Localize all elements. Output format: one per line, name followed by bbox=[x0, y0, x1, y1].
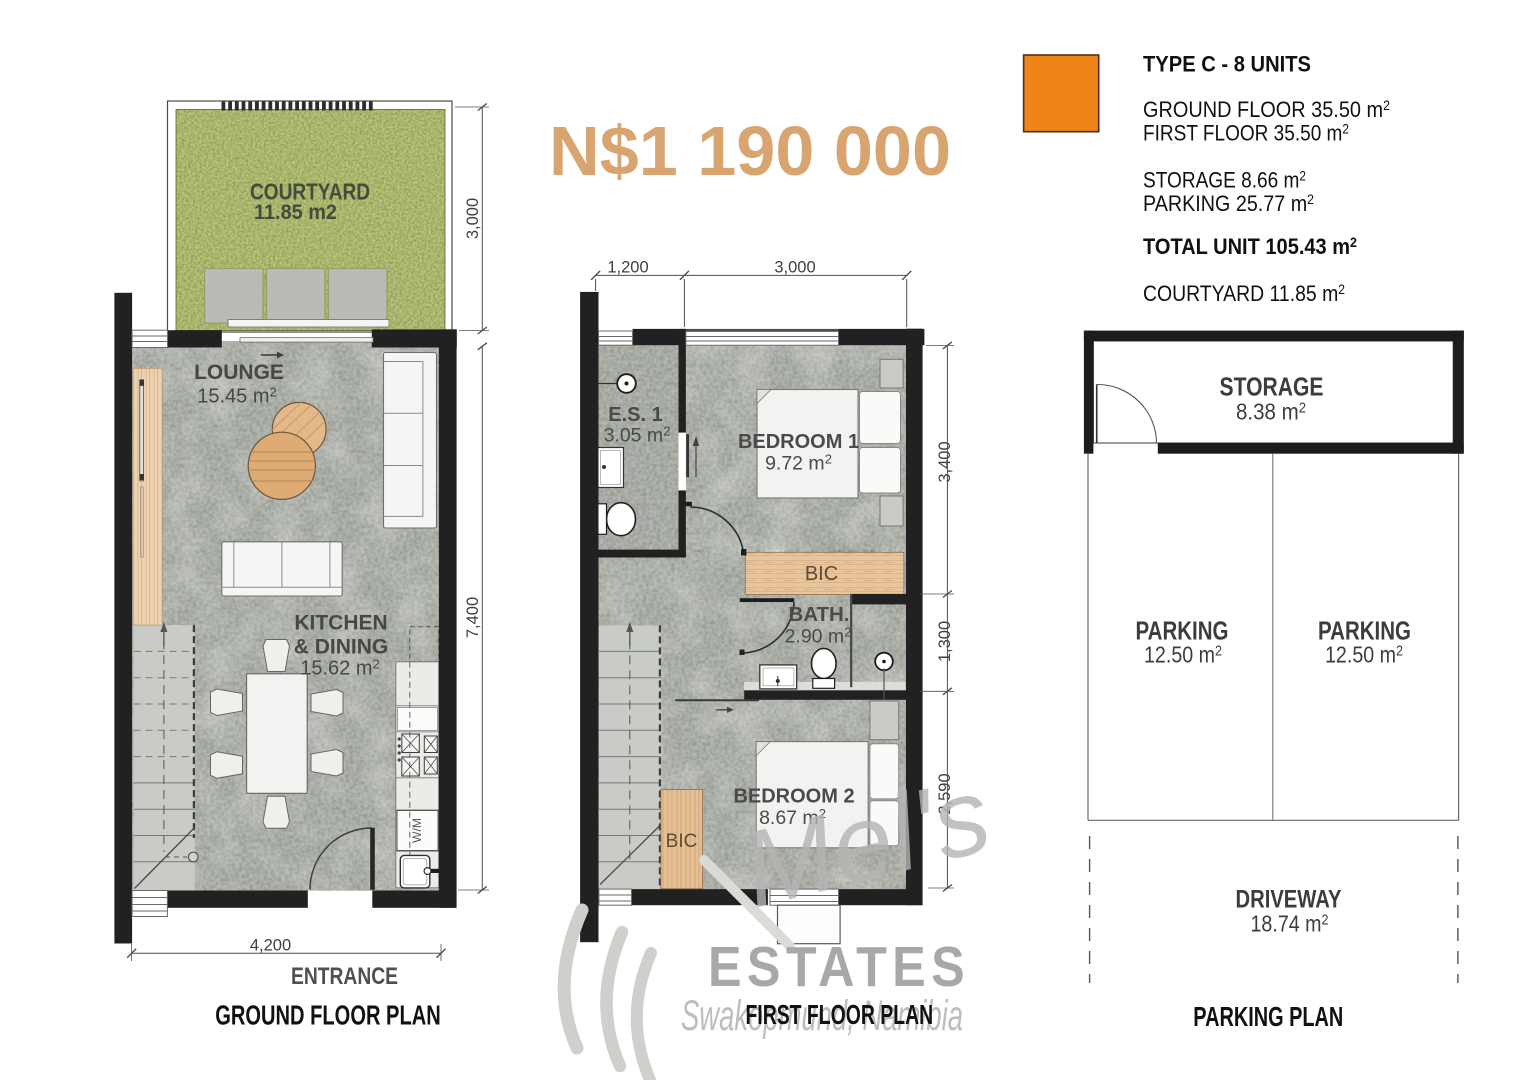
svg-text:4,200: 4,200 bbox=[250, 937, 291, 955]
svg-text:BIC: BIC bbox=[805, 563, 838, 585]
svg-text:TOTAL UNIT 105.43 m2: TOTAL UNIT 105.43 m2 bbox=[1143, 234, 1357, 259]
svg-text:15.62 m2: 15.62 m2 bbox=[300, 657, 380, 680]
svg-text:3.05 m2: 3.05 m2 bbox=[604, 424, 671, 447]
svg-text:STORAGE: STORAGE bbox=[1220, 374, 1324, 402]
svg-text:11.85 m2: 11.85 m2 bbox=[254, 201, 337, 224]
svg-text:BEDROOM 1: BEDROOM 1 bbox=[738, 431, 859, 453]
svg-text:9.72 m2: 9.72 m2 bbox=[765, 452, 832, 475]
svg-text:GROUND FLOOR PLAN: GROUND FLOOR PLAN bbox=[215, 1000, 441, 1031]
svg-text:3,000: 3,000 bbox=[464, 198, 482, 239]
svg-text:BIC: BIC bbox=[666, 831, 698, 852]
svg-text:PARKING 25.77 m2: PARKING 25.77 m2 bbox=[1143, 191, 1314, 216]
svg-text:BATH.: BATH. bbox=[788, 603, 849, 626]
svg-text:3,400: 3,400 bbox=[936, 441, 954, 482]
svg-text:18.74 m2: 18.74 m2 bbox=[1251, 911, 1329, 937]
svg-text:DRIVEWAY: DRIVEWAY bbox=[1236, 886, 1342, 914]
svg-text:1,300: 1,300 bbox=[936, 621, 954, 662]
svg-text:TYPE C - 8 UNITS: TYPE C - 8 UNITS bbox=[1143, 51, 1311, 76]
svg-text:FIRST FLOOR PLAN: FIRST FLOOR PLAN bbox=[745, 999, 933, 1030]
svg-text:W/M: W/M bbox=[410, 818, 424, 843]
svg-text:KITCHEN: KITCHEN bbox=[294, 612, 387, 635]
svg-text:ENTRANCE: ENTRANCE bbox=[291, 963, 398, 990]
svg-text:FIRST FLOOR 35.50 m2: FIRST FLOOR 35.50 m2 bbox=[1143, 121, 1349, 146]
svg-text:2.90 m2: 2.90 m2 bbox=[785, 625, 852, 648]
svg-text:GROUND FLOOR 35.50 m2: GROUND FLOOR 35.50 m2 bbox=[1143, 97, 1390, 122]
svg-text:E.S. 1: E.S. 1 bbox=[608, 404, 662, 426]
svg-text:1,200: 1,200 bbox=[607, 259, 648, 277]
svg-text:12.50 m2: 12.50 m2 bbox=[1144, 642, 1222, 668]
svg-text:COURTYARD 11.85 m2: COURTYARD 11.85 m2 bbox=[1143, 281, 1345, 306]
svg-text:STORAGE 8.66 m2: STORAGE 8.66 m2 bbox=[1143, 168, 1306, 193]
svg-text:PARKING PLAN: PARKING PLAN bbox=[1193, 1001, 1343, 1032]
svg-text:3,000: 3,000 bbox=[774, 259, 815, 277]
svg-text:12.50 m2: 12.50 m2 bbox=[1325, 642, 1403, 668]
svg-text:N$1 190 000: N$1 190 000 bbox=[549, 112, 951, 190]
svg-text:8.38 m2: 8.38 m2 bbox=[1236, 399, 1306, 425]
svg-text:ESTATES: ESTATES bbox=[708, 935, 970, 999]
svg-text:15.45 m2: 15.45 m2 bbox=[197, 385, 277, 408]
svg-text:7,400: 7,400 bbox=[464, 597, 482, 638]
svg-text:& DINING: & DINING bbox=[294, 636, 389, 659]
svg-text:LOUNGE: LOUNGE bbox=[194, 361, 284, 384]
